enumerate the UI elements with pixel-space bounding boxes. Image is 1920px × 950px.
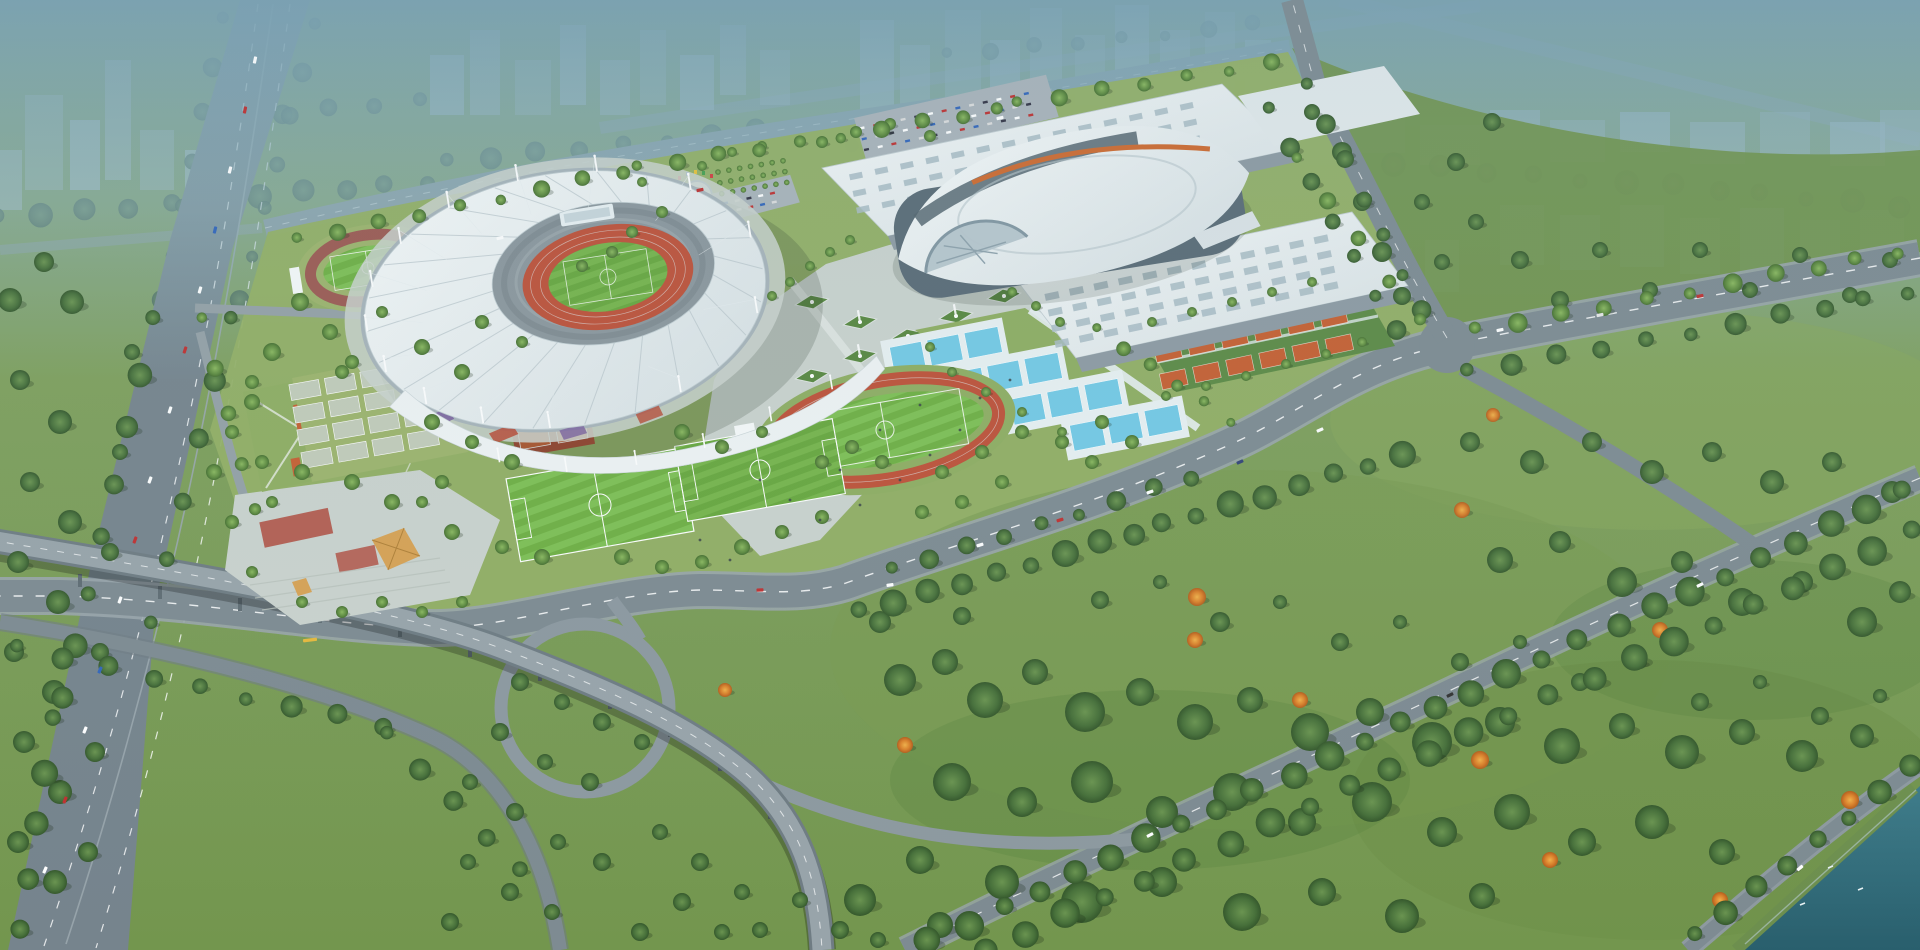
aerial-rendering-canvas [0,0,1920,950]
sports-complex-aerial-rendering [0,0,1920,950]
global-haze [0,0,1920,950]
